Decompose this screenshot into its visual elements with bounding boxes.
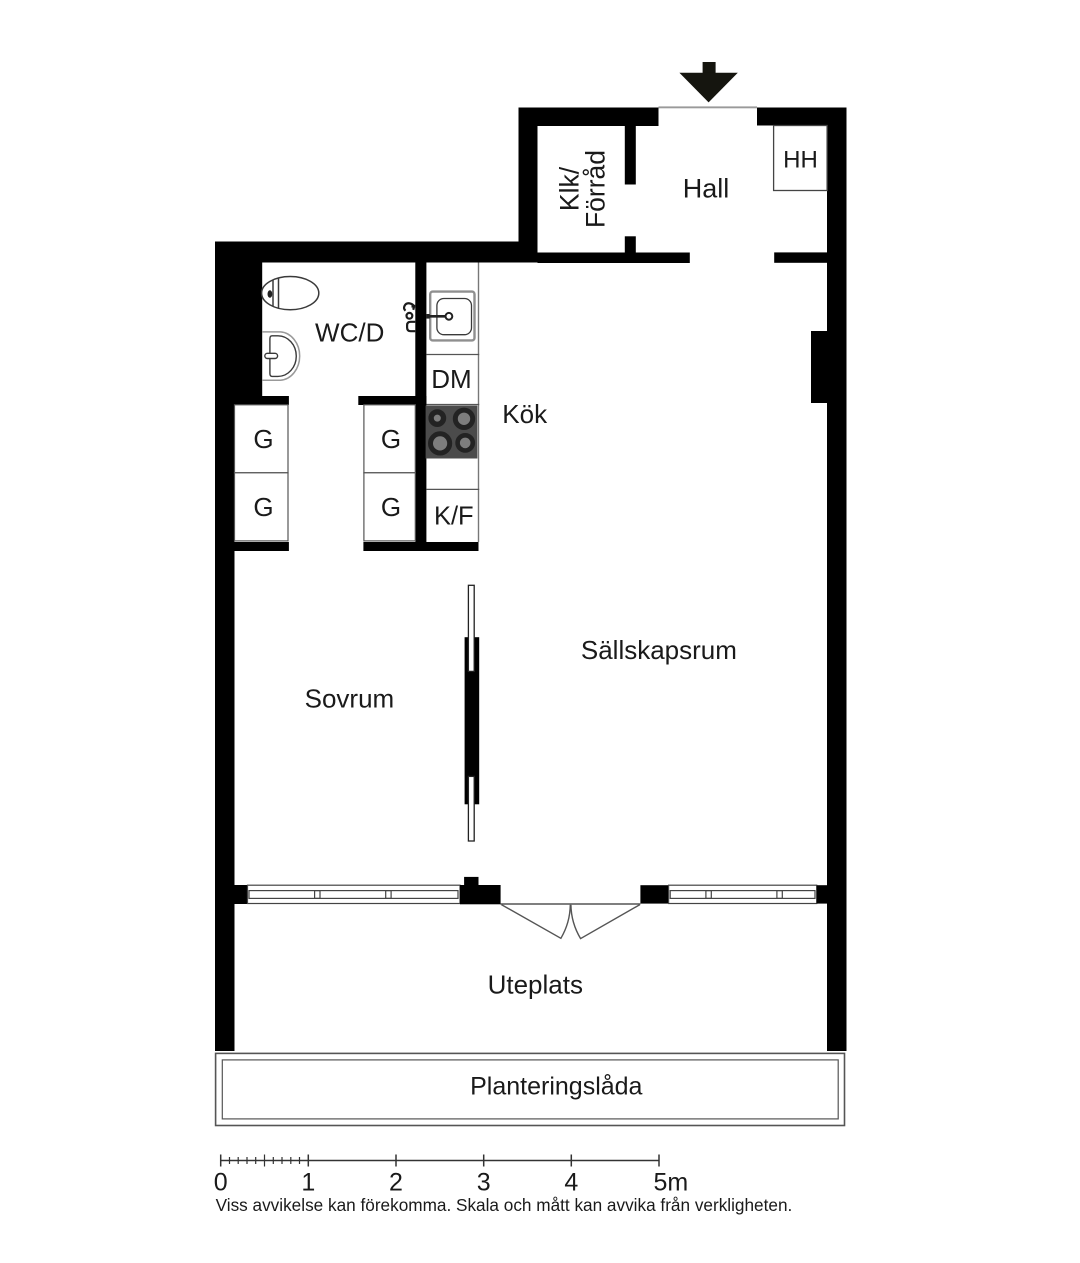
svg-text:G: G xyxy=(381,492,401,522)
svg-text:WC/D: WC/D xyxy=(315,317,384,347)
svg-text:G: G xyxy=(253,492,273,522)
svg-text:4: 4 xyxy=(564,1169,578,1197)
svg-text:Planteringslåda: Planteringslåda xyxy=(470,1073,642,1101)
svg-text:Hall: Hall xyxy=(683,174,730,204)
svg-text:Uteplats: Uteplats xyxy=(488,969,583,999)
svg-text:Sovrum: Sovrum xyxy=(305,684,395,714)
svg-text:Kök: Kök xyxy=(502,399,548,429)
svg-text:G: G xyxy=(381,424,401,454)
svg-text:K/F: K/F xyxy=(434,502,474,530)
svg-text:Viss avvikelse kan förekomma.: Viss avvikelse kan förekomma. Skala och … xyxy=(216,1195,793,1215)
svg-text:G: G xyxy=(253,424,273,454)
svg-text:1: 1 xyxy=(301,1169,315,1197)
svg-text:5m: 5m xyxy=(654,1169,689,1197)
svg-text:2: 2 xyxy=(389,1169,403,1197)
svg-text:0: 0 xyxy=(214,1169,228,1197)
svg-text:3: 3 xyxy=(477,1169,491,1197)
svg-text:HH: HH xyxy=(783,147,818,174)
svg-text:Sällskapsrum: Sällskapsrum xyxy=(581,635,737,665)
svg-text:DM: DM xyxy=(431,364,471,394)
